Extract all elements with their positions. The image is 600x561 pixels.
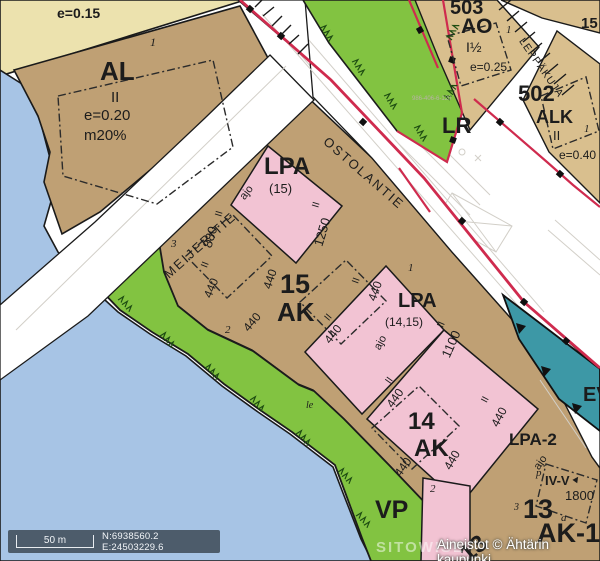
block-number-15: 15 [280, 271, 310, 298]
p-mark: p [536, 468, 542, 479]
al-efficiency: e=0.20 [84, 108, 130, 123]
zone-code-al: AL [100, 58, 135, 84]
al-coverage: m20% [84, 128, 127, 143]
map-attribution: Aineistot © Ähtärin kaupunki [437, 537, 600, 561]
lpa1415-sub: (14,15) [385, 316, 423, 328]
zone-code-ak-15: AK [277, 299, 315, 325]
zone-code-lpa2: LPA-2 [509, 431, 557, 448]
parcel-number: 3 [171, 239, 177, 250]
parcel-number: 3 [514, 503, 519, 513]
zone-code-ao: AO [461, 16, 493, 37]
parcel-number: 1 [408, 263, 414, 274]
parcel-number: 1 [150, 36, 156, 48]
lpa15-sub: (15) [269, 182, 292, 195]
alk-floor-count: II [553, 129, 560, 142]
cadastral-number: 986-406-6-120 [412, 96, 451, 102]
zone-code-ak-14: AK [414, 437, 449, 461]
zone-efficiency-label: e=0.15 [57, 6, 100, 20]
zone-code-lr: LR [442, 115, 471, 137]
scale-bar: 50 m [16, 535, 94, 548]
zone-code-vp: VP [375, 498, 408, 523]
alk-efficiency: e=0.40 [559, 149, 596, 161]
block-number-15-corner: 15 [581, 16, 598, 31]
scale-label: 50 m [44, 535, 66, 546]
parcel-number: 1 [506, 25, 512, 36]
build-right-1800: 1800 [565, 489, 594, 502]
zone-code-lpa15: LPA [264, 155, 310, 179]
ao-efficiency: e=0.25 [470, 61, 507, 73]
zone-code-ev: EV [583, 385, 600, 405]
zoning-map-canvas[interactable]: e=0.15 AL II e=0.20 m20% 1 MEIJERITIE OS… [0, 0, 600, 561]
ao-floor-count: I½ [466, 40, 482, 54]
parcel-number: 2 [430, 484, 436, 495]
zone-code-alk: ALK [536, 108, 573, 126]
parcel-number: 1 [584, 124, 590, 135]
block-number-502: 502 [518, 83, 555, 105]
al-floor-count: II [111, 90, 119, 105]
parcel-number: 2 [225, 325, 231, 336]
zone-code-lpa1415: LPA [398, 291, 437, 311]
floor-range-iv-v: IV-V [545, 474, 570, 487]
coordinate-readout: N:6938560.2 E:24503229.6 [102, 531, 220, 553]
le-mark: le [306, 401, 313, 411]
map-statusbar: 50 m N:6938560.2 E:24503229.6 [8, 530, 220, 553]
block-number-14: 14 [408, 410, 435, 434]
